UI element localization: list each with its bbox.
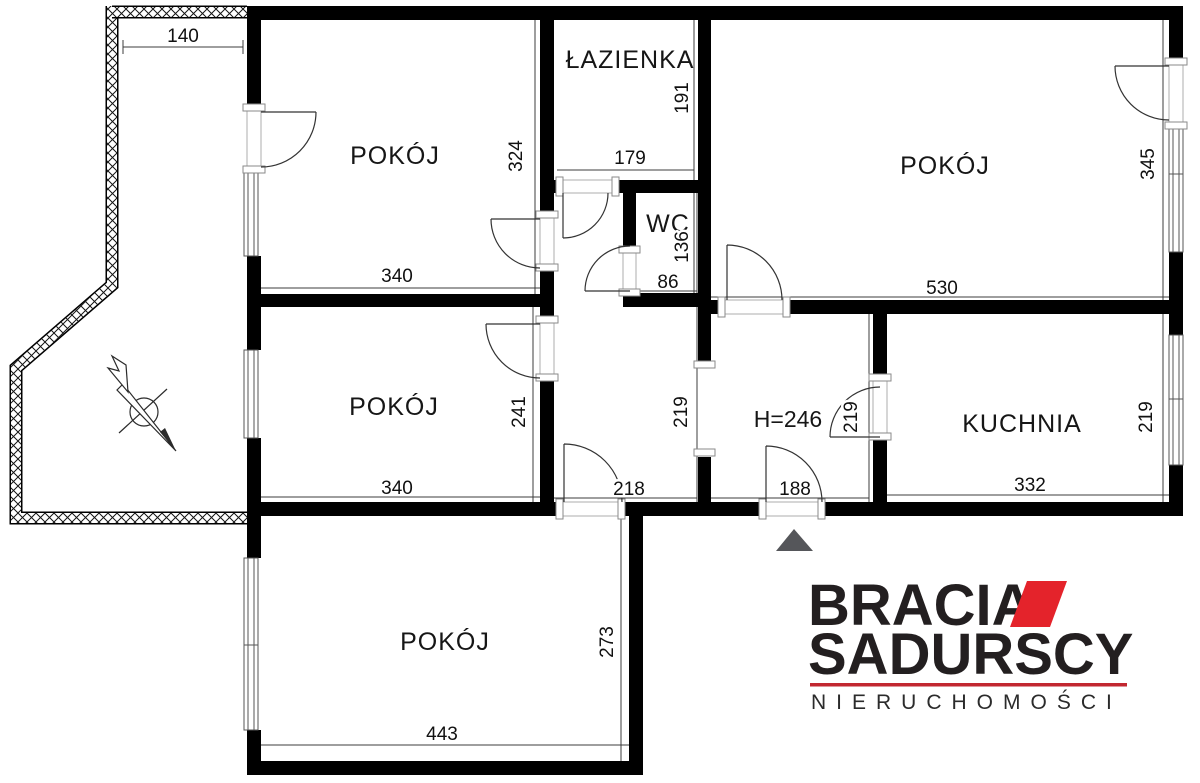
dim-bottom-height: 273 [597, 626, 618, 658]
dim-hall-left: 219 [671, 396, 692, 428]
dim-balcony-top: 140 [167, 26, 199, 47]
door-room-top-right [718, 245, 790, 317]
dim-bathroom-height: 191 [672, 82, 693, 114]
dim-kitchen-height: 219 [1136, 401, 1157, 433]
door-balcony-right [1115, 58, 1187, 129]
dim-hall-width: 218 [613, 479, 645, 500]
dim-bathroom-width: 179 [614, 148, 646, 169]
logo-line2-text: SADURSCY [808, 622, 1134, 687]
room-label-kuchnia: KUCHNIA [962, 410, 1082, 438]
agency-logo: BRACIA SADURSCY NIERUCHOMOŚCI [808, 573, 1134, 714]
logo-red-rule [810, 683, 1127, 687]
door-wc [585, 246, 640, 296]
floor-plan-page: POKÓJ ŁAZIENKA WC POKÓJ POKÓJ KUCHNIA PO… [0, 0, 1200, 783]
floor-plan-svg: POKÓJ ŁAZIENKA WC POKÓJ POKÓJ KUCHNIA PO… [0, 0, 1200, 783]
dim-ml-width: 340 [381, 478, 413, 499]
balcony-hatched-wall [16, 6, 247, 518]
dim-wc-height: 136 [672, 231, 693, 263]
room-label-lazienka: ŁAZIENKA [566, 46, 695, 74]
dim-bottom-width: 443 [426, 724, 458, 745]
logo-tagline-text: NIERUCHOMOŚCI [811, 690, 1122, 714]
dim-wc-width: 86 [657, 272, 678, 293]
room-label-pokoj-top-right: POKÓJ [900, 151, 990, 180]
north-arrow-icon [108, 356, 176, 451]
dim-tr-height: 345 [1138, 148, 1159, 180]
dim-hall-right: 219 [841, 401, 862, 433]
window-room-bottom [244, 558, 258, 730]
dim-entrance-width: 188 [779, 479, 811, 500]
window-kitchen [1169, 335, 1183, 465]
room-label-pokoj-bottom: POKÓJ [400, 627, 490, 656]
room-labels: POKÓJ ŁAZIENKA WC POKÓJ POKÓJ KUCHNIA PO… [349, 46, 1082, 656]
door-room-top-left [491, 211, 558, 271]
door-bathroom [556, 177, 619, 238]
window-room-middle-left [244, 350, 258, 438]
entrance-marker-triangle [776, 529, 813, 551]
dim-tl-height: 324 [506, 140, 527, 172]
ceiling-height-label: H=246 [754, 406, 822, 432]
dim-tr-width: 530 [926, 278, 958, 299]
window-room-top-right [1169, 126, 1183, 252]
dim-ml-height: 241 [509, 396, 530, 428]
room-label-pokoj-middle-left: POKÓJ [349, 392, 439, 421]
door-balcony [243, 104, 316, 173]
dim-kitchen-width: 332 [1014, 475, 1046, 496]
dim-tl-width: 340 [381, 266, 413, 287]
window-room-top-left [244, 170, 258, 256]
room-label-pokoj-top-left: POKÓJ [350, 141, 440, 170]
door-room-middle-left [486, 316, 558, 381]
